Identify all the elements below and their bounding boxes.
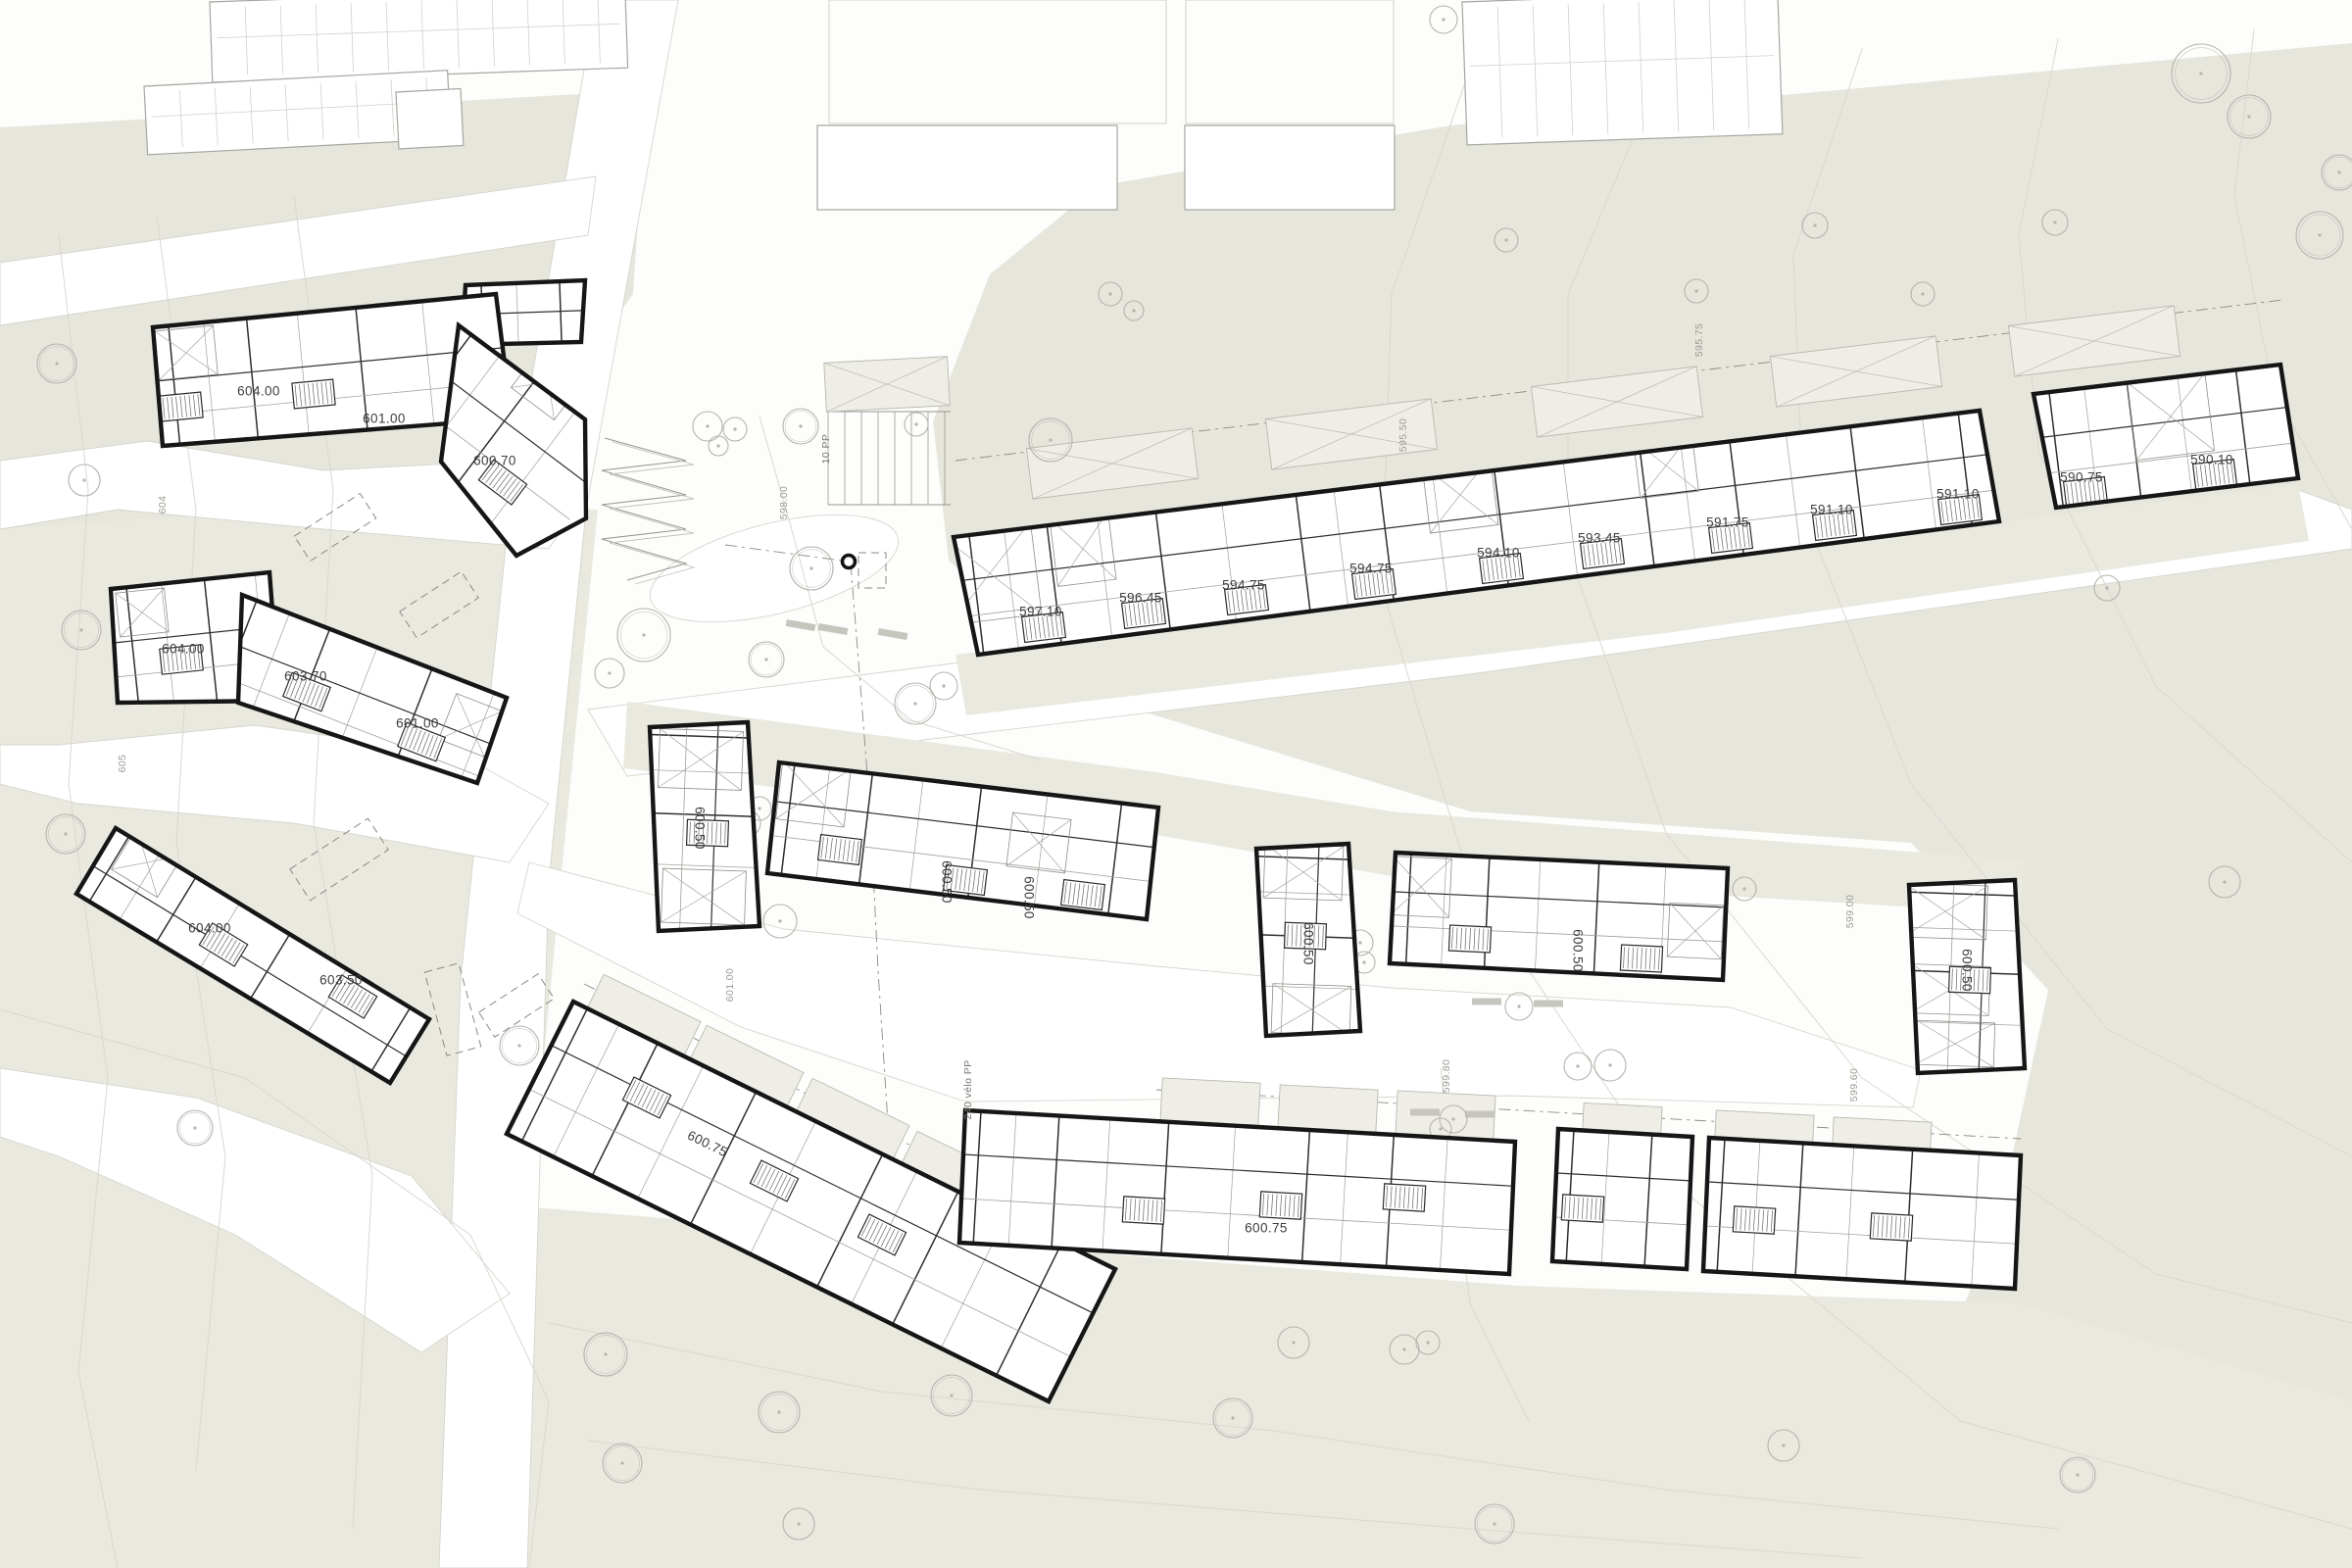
elevation-label: 596.45 — [1119, 591, 1162, 606]
elevation-label: 594.75 — [1222, 578, 1265, 593]
contour-label: 598.00 — [778, 486, 790, 520]
survey-point-marker — [843, 556, 856, 568]
stair-core — [1259, 1192, 1301, 1219]
existing-building — [1462, 0, 1783, 145]
elevation-label: 601.00 — [396, 716, 439, 731]
contour-label: 599.80 — [1441, 1059, 1452, 1094]
elevation-label: 600.50 — [1960, 949, 1975, 992]
stair-core — [160, 392, 203, 421]
elevation-label: 600.50 — [693, 807, 708, 850]
context-outline — [829, 0, 1166, 123]
stair-core — [1383, 1184, 1425, 1211]
elevation-label: 593.45 — [1578, 531, 1621, 546]
elevation-label: 604.00 — [237, 384, 280, 399]
bench — [1472, 999, 1501, 1005]
tree-icon — [617, 609, 670, 661]
elevation-label: 600.50 — [1022, 876, 1037, 919]
elevation-label: 603.70 — [284, 669, 327, 684]
stair-core — [292, 379, 335, 409]
elevation-label: 600.50 — [940, 860, 955, 904]
parking-stalls — [828, 412, 951, 505]
existing-building — [817, 125, 1117, 210]
tree-icon — [749, 642, 784, 677]
elevation-label: 594.10 — [1477, 546, 1520, 561]
bench — [786, 619, 816, 631]
existing-building — [210, 0, 628, 82]
elevation-label: 600.50 — [1301, 922, 1316, 965]
canopy-roof — [824, 357, 950, 413]
canopy-roof — [1278, 1085, 1378, 1134]
stair-core — [1561, 1195, 1603, 1222]
elevation-label: 604.00 — [162, 642, 205, 657]
stair-core — [1061, 880, 1105, 910]
elevation-label: 590.10 — [2190, 453, 2233, 467]
stair-core — [1620, 945, 1662, 972]
parking-label: 10 PP — [820, 434, 832, 465]
elevation-label: 594.75 — [1349, 562, 1393, 576]
stair-core — [1733, 1206, 1775, 1234]
site-plan-svg: 604.00601.00600.70604.00603.70601.00604.… — [0, 0, 2352, 1568]
contour-label: 599.60 — [1848, 1068, 1860, 1102]
contour-label: 601.00 — [724, 968, 736, 1003]
elevation-label: 597.10 — [1019, 605, 1062, 619]
elevation-label: 604.00 — [188, 921, 231, 936]
bench — [1410, 1109, 1440, 1116]
bench — [1465, 1111, 1494, 1118]
parking-label: 240 vélo PP — [962, 1059, 974, 1119]
tree-icon — [783, 409, 818, 444]
bench — [818, 623, 849, 635]
stair-core — [818, 835, 862, 865]
elevation-label: 591.75 — [1706, 515, 1749, 530]
existing-building — [1185, 125, 1395, 210]
path-island — [640, 494, 909, 643]
tree-icon — [595, 659, 624, 688]
elevation-label: 591.10 — [1936, 487, 1980, 502]
bench — [1534, 1001, 1563, 1007]
tree-icon — [693, 412, 722, 441]
contour-label: 595.50 — [1397, 418, 1409, 453]
contour-label: 595.75 — [1693, 323, 1705, 358]
contour-label: 605 — [117, 755, 128, 773]
existing-building — [396, 89, 464, 149]
stair-core — [1448, 925, 1491, 953]
contour-label: 604 — [157, 496, 169, 514]
tree-icon — [905, 413, 928, 436]
stair-core — [1122, 1197, 1164, 1224]
elevation-label: 600.50 — [1571, 929, 1586, 972]
tree-icon — [1430, 6, 1457, 33]
stair-core — [1870, 1213, 1912, 1241]
retaining-zigzag — [602, 438, 686, 580]
elevation-label: 601.00 — [363, 412, 406, 426]
tree-icon — [709, 436, 728, 456]
elevation-label: 591.10 — [1810, 503, 1853, 517]
elevation-label: 603.50 — [319, 973, 363, 988]
contour-label: 599.00 — [1844, 895, 1856, 929]
elevation-label: 600.75 — [1245, 1221, 1288, 1236]
elevation-label: 590.75 — [2060, 470, 2103, 485]
tree-icon — [723, 417, 747, 441]
context-outline — [1186, 0, 1394, 123]
site-plan-stage: 604.00601.00600.70604.00603.70601.00604.… — [0, 0, 2352, 1568]
canopy-roof — [1160, 1078, 1260, 1127]
bench — [878, 628, 908, 640]
elevation-label: 600.70 — [473, 454, 516, 468]
